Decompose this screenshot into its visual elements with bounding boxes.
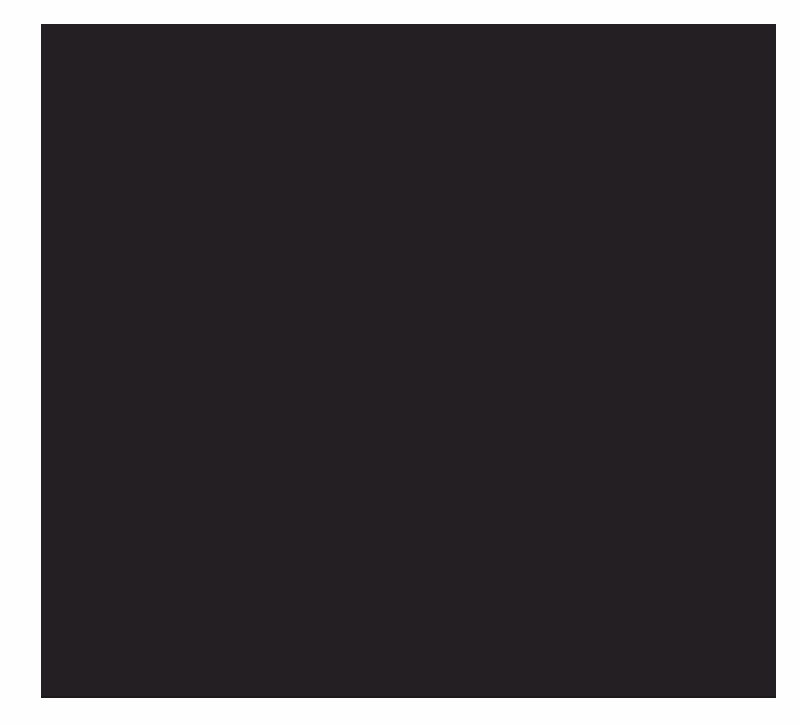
dark-panel [41, 24, 776, 698]
page-background [0, 0, 800, 726]
panel-bottom-edge [41, 696, 776, 698]
